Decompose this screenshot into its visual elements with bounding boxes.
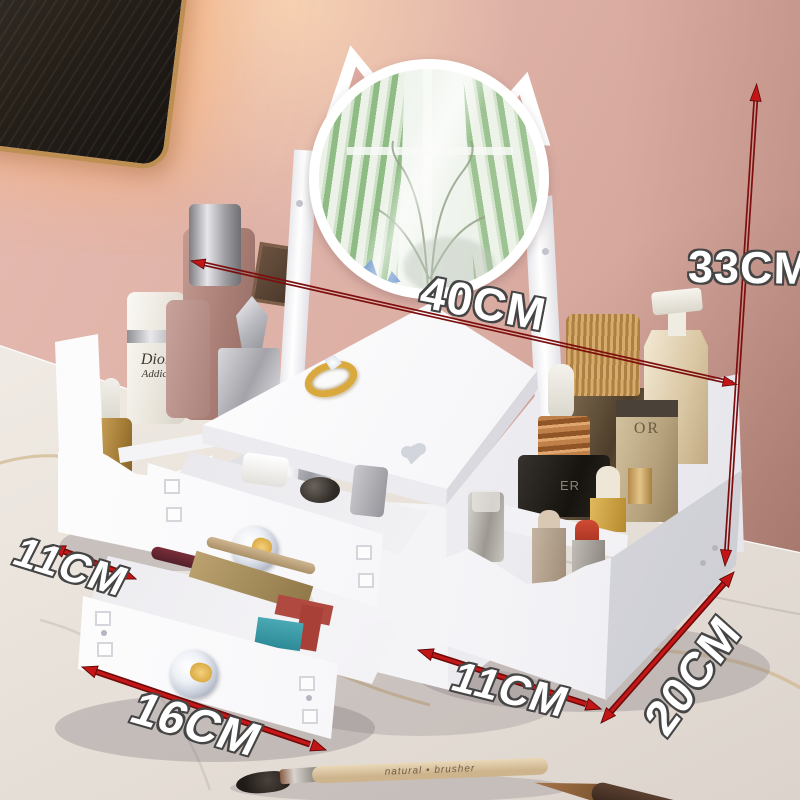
arrowheads-33cm xyxy=(721,84,762,566)
arrow-33cm xyxy=(724,96,757,558)
product-photo: Dior Addict xyxy=(0,0,800,800)
dimension-label-33cm: 33CM xyxy=(688,241,800,295)
